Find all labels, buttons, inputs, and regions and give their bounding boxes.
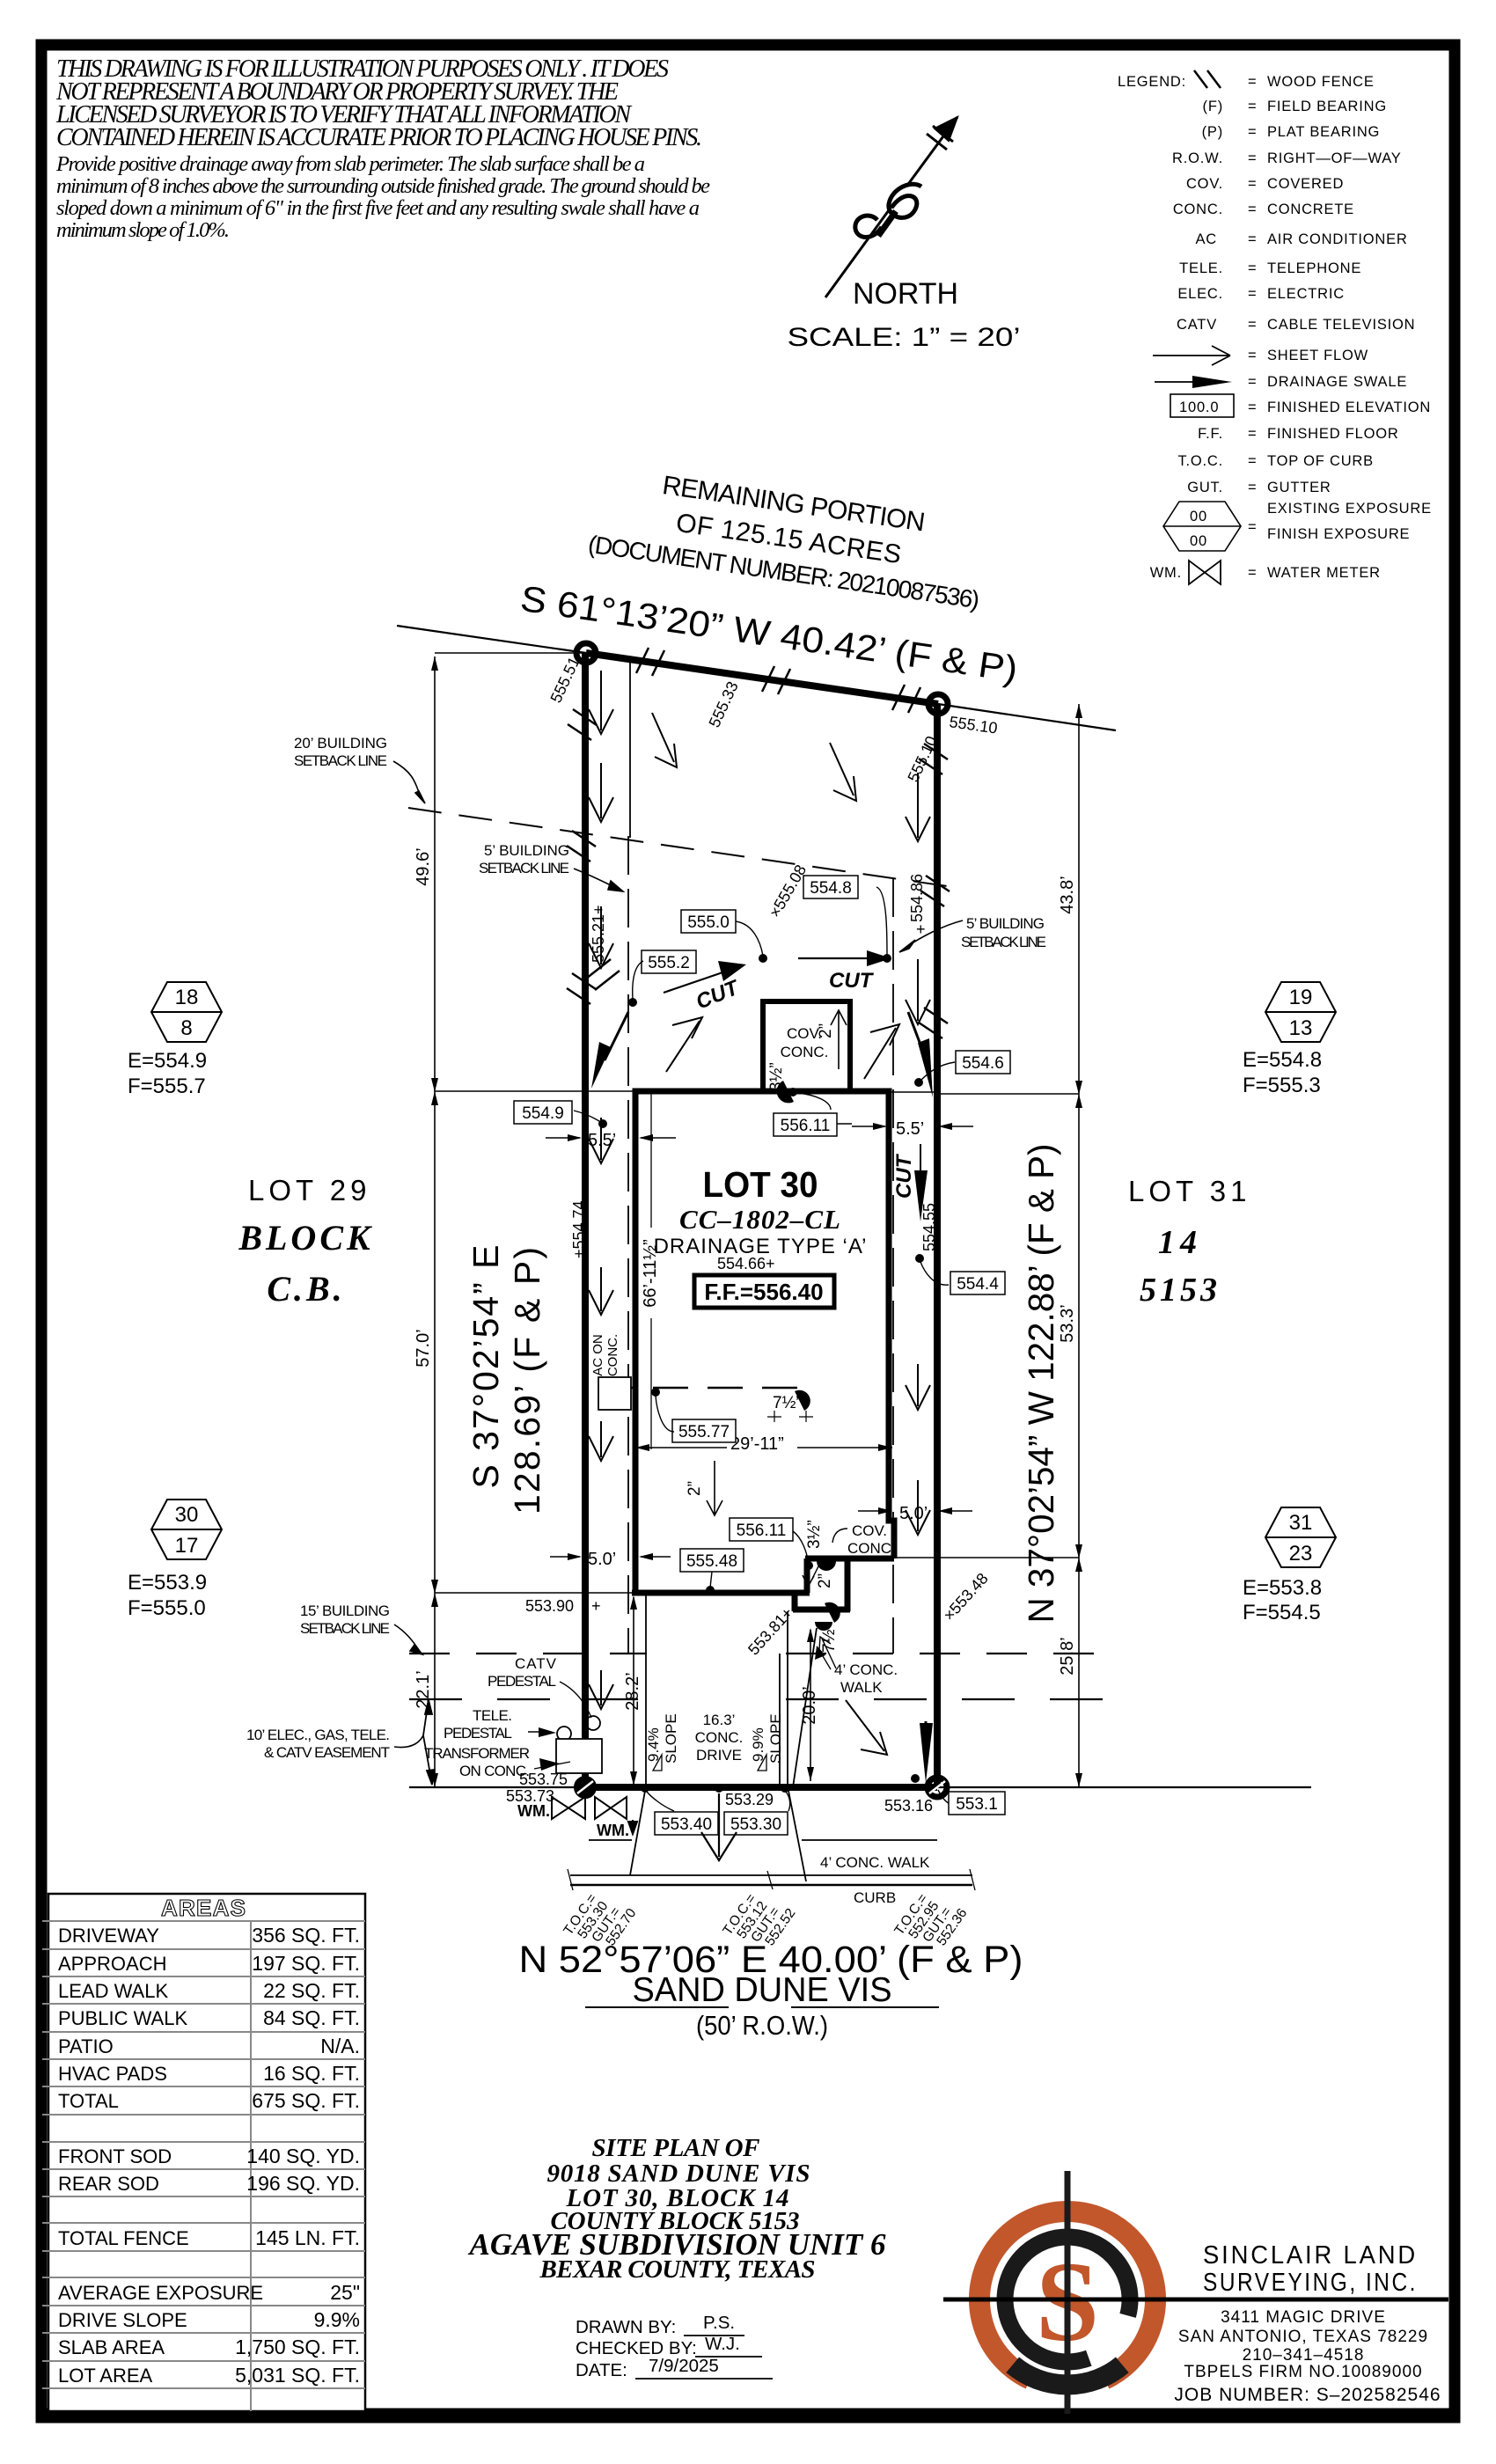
svg-text:00: 00: [1190, 509, 1207, 524]
svg-text:ELECTRIC: ELECTRIC: [1267, 286, 1345, 302]
svg-text:SINCLAIR LAND: SINCLAIR LAND: [1203, 2241, 1418, 2270]
svg-text:15’ BUILDING: 15’ BUILDING: [300, 1602, 390, 1619]
svg-text:16.3’: 16.3’: [703, 1712, 736, 1728]
svg-text:(50’ R.O.W.): (50’ R.O.W.): [696, 2010, 828, 2041]
svg-text:43.8’: 43.8’: [1058, 876, 1077, 913]
svg-text:16 SQ. FT.: 16 SQ. FT.: [263, 2062, 360, 2085]
svg-text:WALK: WALK: [840, 1679, 883, 1696]
svg-text:31: 31: [1289, 1511, 1313, 1535]
svg-text:SAN ANTONIO, TEXAS 78229: SAN ANTONIO, TEXAS 78229: [1178, 2328, 1428, 2346]
svg-text:22 SQ. FT.: 22 SQ. FT.: [263, 1979, 360, 2002]
svg-text:PLAT BEARING: PLAT BEARING: [1267, 124, 1380, 140]
svg-text:1,750 SQ. FT.: 1,750 SQ. FT.: [235, 2336, 360, 2358]
svg-text:=: =: [1248, 286, 1257, 302]
svg-text:WOOD FENCE: WOOD FENCE: [1267, 74, 1375, 90]
svg-text:SETBACK LINE: SETBACK LINE: [961, 934, 1046, 950]
svg-text:57.0’: 57.0’: [414, 1329, 433, 1367]
svg-text:LOT AREA: LOT AREA: [58, 2365, 153, 2387]
svg-text:TOTAL: TOTAL: [58, 2090, 119, 2112]
svg-text:JOB NUMBER: S–202582546: JOB NUMBER: S–202582546: [1174, 2385, 1441, 2405]
svg-text:F=555.7: F=555.7: [128, 1074, 206, 1098]
svg-text:128.69’ (F & P): 128.69’ (F & P): [507, 1247, 547, 1514]
svg-text:CATV: CATV: [515, 1655, 557, 1672]
svg-text:53.3’: 53.3’: [1058, 1304, 1077, 1342]
svg-text:S 37°02’54” E: S 37°02’54” E: [466, 1245, 506, 1489]
svg-text:C.B.: C.B.: [267, 1269, 345, 1309]
svg-text:BEXAR COUNTY, TEXAS: BEXAR COUNTY, TEXAS: [539, 2255, 816, 2284]
svg-text:CONC.: CONC.: [781, 1044, 829, 1060]
svg-text:554.6: 554.6: [962, 1054, 1004, 1073]
svg-text:RIGHT—OF—WAY: RIGHT—OF—WAY: [1267, 150, 1402, 166]
svg-text:=: =: [1248, 124, 1257, 140]
svg-text:CABLE TELEVISION: CABLE TELEVISION: [1267, 317, 1415, 333]
svg-text:555.10: 555.10: [948, 713, 998, 737]
svg-text:LOT 30: LOT 30: [703, 1164, 818, 1205]
svg-text:DRIVE SLOPE: DRIVE SLOPE: [58, 2309, 187, 2331]
svg-text:ELEC.: ELEC.: [1177, 286, 1223, 302]
svg-text:140 SQ. YD.: 140 SQ. YD.: [246, 2145, 360, 2167]
svg-text:9.9%: 9.9%: [314, 2308, 360, 2331]
svg-text:675 SQ. FT.: 675 SQ. FT.: [252, 2089, 360, 2112]
svg-text:E=554.9: E=554.9: [128, 1049, 207, 1073]
svg-text:WM.: WM.: [517, 1802, 550, 1820]
svg-text:=: =: [1248, 453, 1257, 469]
svg-text:CONTAINED HEREIN IS ACCURATE P: CONTAINED HEREIN IS ACCURATE PRIOR TO PL…: [56, 124, 702, 151]
svg-text:13: 13: [1289, 1016, 1313, 1040]
svg-text:7½”: 7½”: [773, 1394, 802, 1412]
svg-text:FIELD BEARING: FIELD BEARING: [1267, 99, 1387, 114]
svg-text:553.30: 553.30: [730, 1815, 781, 1834]
svg-text:AREAS: AREAS: [161, 1895, 253, 1921]
svg-text:18: 18: [175, 986, 199, 1009]
svg-text:R.O.W.: R.O.W.: [1172, 150, 1223, 166]
svg-text:5’ BUILDING: 5’ BUILDING: [484, 842, 569, 859]
svg-text:PEDESTAL: PEDESTAL: [444, 1725, 512, 1742]
svg-text:F=554.5: F=554.5: [1243, 1601, 1321, 1624]
svg-text:SLOPE: SLOPE: [767, 1713, 784, 1764]
svg-text:TBPELS FIRM NO.10089000: TBPELS FIRM NO.10089000: [1184, 2363, 1422, 2381]
svg-text:356 SQ. FT.: 356 SQ. FT.: [252, 1924, 360, 1947]
svg-text:=: =: [1248, 426, 1257, 442]
svg-text:19: 19: [1289, 986, 1313, 1009]
svg-text:100.0: 100.0: [1179, 400, 1219, 415]
svg-text:5.0’: 5.0’: [899, 1504, 928, 1523]
svg-text:+: +: [916, 920, 926, 938]
svg-text:554.9: 554.9: [522, 1104, 564, 1123]
svg-text:F=555.3: F=555.3: [1243, 1074, 1321, 1097]
svg-text:555.2: 555.2: [648, 954, 690, 972]
svg-text:4’ CONC. WALK: 4’ CONC. WALK: [820, 1854, 930, 1871]
svg-text:553.40: 553.40: [661, 1815, 712, 1834]
svg-text:5’ BUILDING: 5’ BUILDING: [966, 915, 1045, 932]
svg-text:=: =: [1248, 348, 1257, 363]
svg-text:84 SQ. FT.: 84 SQ. FT.: [263, 2006, 360, 2029]
svg-text:TELE.: TELE.: [473, 1707, 512, 1724]
svg-text:5.5’: 5.5’: [896, 1119, 924, 1139]
svg-text:T.O.C.: T.O.C.: [1177, 453, 1223, 469]
svg-text:=: =: [1248, 519, 1257, 535]
svg-text:LEAD WALK: LEAD WALK: [58, 1980, 168, 2002]
svg-text:=: =: [1248, 74, 1257, 90]
svg-text:GUT.: GUT.: [1187, 480, 1223, 495]
svg-text:N 37°02’54” W 122.88’ (F & P): N 37°02’54” W 122.88’ (F & P): [1021, 1144, 1061, 1624]
svg-text:22.1’: 22.1’: [414, 1670, 433, 1708]
svg-text:197 SQ. FT.: 197 SQ. FT.: [252, 1952, 360, 1975]
svg-text:=: =: [1248, 317, 1257, 333]
svg-text:=: =: [1248, 260, 1257, 276]
svg-text:553.81+: 553.81+: [744, 1604, 796, 1659]
svg-text:WM.: WM.: [1150, 565, 1182, 581]
svg-text:CONC.: CONC.: [605, 1334, 620, 1376]
svg-text:minimum slope of 1.0%.: minimum slope of 1.0%.: [56, 218, 230, 242]
svg-text:(P): (P): [1202, 124, 1223, 140]
svg-text:555.48: 555.48: [686, 1552, 737, 1571]
svg-text:HVAC PADS: HVAC PADS: [58, 2063, 167, 2085]
svg-text:=: =: [1248, 374, 1257, 390]
svg-text:FINISHED FLOOR: FINISHED FLOOR: [1267, 426, 1399, 442]
svg-text:DRAWN BY:: DRAWN BY:: [576, 2317, 676, 2337]
svg-text:210–341–4518: 210–341–4518: [1243, 2346, 1365, 2365]
svg-text:554.4: 554.4: [957, 1275, 999, 1294]
svg-text:F.F.=556.40: F.F.=556.40: [704, 1279, 823, 1305]
svg-text:LOT 29: LOT 29: [248, 1174, 370, 1206]
svg-text:DRIVE: DRIVE: [696, 1747, 742, 1764]
svg-text:×553.48: ×553.48: [940, 1570, 992, 1624]
svg-text:29’-11”: 29’-11”: [730, 1434, 784, 1454]
svg-text:3411 MAGIC DRIVE: 3411 MAGIC DRIVE: [1221, 2308, 1386, 2327]
svg-text:TELEPHONE: TELEPHONE: [1267, 260, 1361, 276]
svg-text:553.16: 553.16: [884, 1797, 933, 1815]
svg-text:CONCRETE: CONCRETE: [1267, 202, 1354, 217]
svg-text:=: =: [1248, 202, 1257, 217]
svg-text:EXISTING EXPOSURE: EXISTING EXPOSURE: [1267, 501, 1432, 517]
svg-text:553.29: 553.29: [725, 1791, 774, 1808]
svg-text:28.2’: 28.2’: [623, 1672, 642, 1710]
svg-text:23: 23: [1289, 1542, 1313, 1566]
svg-text:(F): (F): [1203, 99, 1223, 114]
svg-text:556.11: 556.11: [737, 1522, 787, 1540]
svg-text:10’ ELEC., GAS, TELE.: 10’ ELEC., GAS, TELE.: [246, 1727, 390, 1743]
svg-text:20’ BUILDING: 20’ BUILDING: [294, 735, 387, 752]
svg-text:5.0’: 5.0’: [588, 1550, 616, 1569]
svg-text:ON CONC.: ON CONC.: [459, 1763, 530, 1779]
svg-text:Provide positive drainage away: Provide positive drainage away from slab…: [55, 152, 645, 176]
svg-text:N/A.: N/A.: [320, 2035, 360, 2057]
svg-text:=: =: [1248, 400, 1257, 415]
svg-text:DATE:: DATE:: [576, 2360, 627, 2380]
svg-text:554.86: 554.86: [908, 874, 926, 922]
svg-text:FINISH EXPOSURE: FINISH EXPOSURE: [1267, 526, 1410, 542]
svg-text:17: 17: [175, 1534, 199, 1558]
svg-text:+554.74: +554.74: [570, 1200, 588, 1258]
svg-text:LEGEND:: LEGEND:: [1118, 74, 1186, 90]
svg-text:555.0: 555.0: [687, 913, 730, 932]
svg-text:145 LN. FT.: 145 LN. FT.: [255, 2226, 360, 2249]
svg-text:CONC.: CONC.: [695, 1729, 744, 1746]
svg-text:GUTTER: GUTTER: [1267, 480, 1331, 495]
svg-text:=: =: [1248, 480, 1257, 495]
svg-text:SLOPE: SLOPE: [663, 1713, 679, 1764]
svg-text:2”: 2”: [817, 1023, 835, 1038]
svg-text:=: =: [1248, 565, 1257, 581]
svg-text:COV.: COV.: [852, 1522, 887, 1539]
svg-text:DRIVEWAY: DRIVEWAY: [58, 1925, 159, 1947]
svg-text:REAR SOD: REAR SOD: [58, 2173, 159, 2195]
svg-text:556.11: 556.11: [781, 1117, 831, 1135]
svg-text:P.S.: P.S.: [703, 2313, 735, 2333]
svg-text:CUT: CUT: [829, 969, 875, 993]
svg-text:555.21+: 555.21+: [590, 905, 607, 963]
svg-text:CUT: CUT: [892, 1153, 916, 1199]
svg-text:CC–1802–CL: CC–1802–CL: [679, 1204, 841, 1235]
svg-text:E=553.8: E=553.8: [1243, 1576, 1322, 1600]
svg-text:minimum of 8 inches above the: minimum of 8 inches above the surroundin…: [56, 174, 710, 198]
svg-text:FRONT SOD: FRONT SOD: [58, 2145, 172, 2167]
svg-text:TOP OF CURB: TOP OF CURB: [1267, 453, 1374, 469]
svg-text:CURB: CURB: [854, 1889, 896, 1906]
svg-text:AIR CONDITIONER: AIR CONDITIONER: [1267, 231, 1408, 247]
svg-text:CONC.: CONC.: [1173, 202, 1223, 217]
svg-text:COVERED: COVERED: [1267, 176, 1344, 192]
svg-text:9.9%: 9.9%: [750, 1727, 766, 1762]
svg-text:PATIO: PATIO: [58, 2035, 114, 2057]
svg-text:554.66+: 554.66+: [717, 1255, 775, 1272]
svg-text:00: 00: [1190, 533, 1207, 549]
svg-text:F.F.: F.F.: [1198, 426, 1223, 442]
svg-text:PUBLIC WALK: PUBLIC WALK: [58, 2007, 187, 2029]
svg-text:COV.: COV.: [1186, 176, 1223, 192]
svg-text:555.33: 555.33: [705, 678, 741, 730]
svg-text:BLOCK: BLOCK: [238, 1218, 373, 1258]
svg-text:SCALE: 1” = 20’: SCALE: 1” = 20’: [788, 323, 1021, 352]
svg-text:SLAB AREA: SLAB AREA: [58, 2336, 165, 2358]
svg-text:E=554.8: E=554.8: [1243, 1048, 1322, 1072]
svg-text:=: =: [1248, 150, 1257, 166]
svg-text:4’ CONC.: 4’ CONC.: [834, 1661, 898, 1678]
svg-text:SITE PLAN OF: SITE PLAN OF: [592, 2134, 760, 2162]
svg-text:2”: 2”: [816, 1573, 834, 1588]
svg-text:CATV: CATV: [1177, 317, 1217, 333]
svg-text:553.1: 553.1: [956, 1795, 998, 1814]
svg-text:25": 25": [330, 2281, 360, 2304]
svg-text:30: 30: [175, 1503, 199, 1527]
svg-text:W.J.: W.J.: [705, 2334, 740, 2354]
svg-text:DRAINAGE SWALE: DRAINAGE SWALE: [1267, 374, 1407, 390]
svg-text:3½”: 3½”: [805, 1520, 824, 1549]
svg-text:SHEET FLOW: SHEET FLOW: [1267, 348, 1368, 363]
svg-text:TRANSFORMER: TRANSFORMER: [424, 1745, 530, 1762]
svg-text:SETBACK LINE: SETBACK LINE: [294, 752, 387, 769]
svg-text:CONC.: CONC.: [847, 1540, 896, 1557]
svg-text:5153: 5153: [1140, 1272, 1221, 1309]
svg-text:SETBACK LINE: SETBACK LINE: [479, 860, 569, 876]
svg-text:14: 14: [1158, 1224, 1202, 1261]
svg-text:554.55: 554.55: [920, 1203, 938, 1251]
svg-text:AC ON: AC ON: [590, 1334, 605, 1376]
svg-text:APPROACH: APPROACH: [58, 1953, 166, 1975]
svg-text:FINISHED ELEVATION: FINISHED ELEVATION: [1267, 400, 1431, 415]
svg-text:=: =: [1248, 176, 1257, 192]
svg-text:PEDESTAL: PEDESTAL: [488, 1673, 556, 1690]
svg-text:WM.: WM.: [597, 1822, 629, 1839]
svg-text:25.8’: 25.8’: [1058, 1637, 1077, 1675]
svg-text:WATER METER: WATER METER: [1267, 565, 1381, 581]
svg-text:TOTAL FENCE: TOTAL FENCE: [58, 2227, 189, 2249]
svg-text:5,031 SQ. FT.: 5,031 SQ. FT.: [235, 2364, 360, 2387]
svg-text:555.51: 555.51: [546, 654, 583, 705]
svg-text:E=553.9: E=553.9: [128, 1571, 207, 1595]
svg-text:LOT 31: LOT 31: [1128, 1175, 1250, 1207]
svg-text:AVERAGE EXPOSURE: AVERAGE EXPOSURE: [58, 2282, 263, 2304]
svg-text:8: 8: [180, 1016, 192, 1040]
svg-text:2”: 2”: [686, 1481, 704, 1496]
svg-text:49.6’: 49.6’: [414, 847, 433, 885]
svg-text:AC: AC: [1195, 231, 1217, 247]
svg-text:554.8: 554.8: [810, 879, 852, 898]
svg-text:553.90: 553.90: [525, 1597, 574, 1615]
svg-text:TELE.: TELE.: [1179, 260, 1223, 276]
svg-text:SAND DUNE VIS: SAND DUNE VIS: [633, 1971, 892, 2009]
svg-text:7/9/2025: 7/9/2025: [649, 2356, 719, 2376]
svg-text:9.4%: 9.4%: [645, 1727, 662, 1762]
svg-text:555.77: 555.77: [678, 1423, 730, 1441]
svg-text:+: +: [591, 1597, 601, 1615]
svg-text:SETBACK LINE: SETBACK LINE: [300, 1620, 390, 1637]
svg-text:sloped down a minimum of 6" in: sloped down a minimum of 6" in the first…: [56, 196, 700, 220]
svg-text:=: =: [1248, 99, 1257, 114]
svg-text:196 SQ. YD.: 196 SQ. YD.: [246, 2172, 360, 2195]
svg-text:F=555.0: F=555.0: [128, 1596, 206, 1620]
svg-text:NORTH: NORTH: [853, 277, 958, 311]
svg-text:=: =: [1248, 231, 1257, 247]
svg-text:SURVEYING, INC.: SURVEYING, INC.: [1203, 2269, 1418, 2297]
svg-text:& CATV EASEMENT: & CATV EASEMENT: [264, 1744, 390, 1761]
